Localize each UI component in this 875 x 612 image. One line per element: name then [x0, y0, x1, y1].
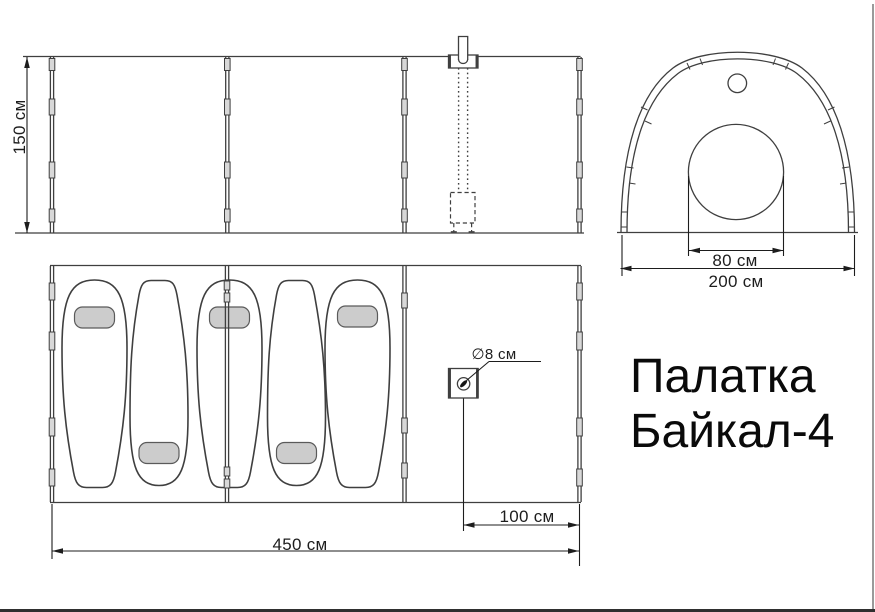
stove-base — [449, 368, 479, 398]
stove-offset-dimension-label: 100 см — [499, 507, 554, 527]
stove-pipe-hidden — [459, 68, 468, 192]
tent-drawing-page: 150 см 80 см 200 см ∅8 см 100 см 450 см … — [0, 0, 875, 612]
door-opening — [688, 124, 783, 219]
pillow-3 — [210, 307, 250, 328]
height-dimension-label: 150 см — [10, 99, 30, 154]
scan-border-right — [872, 4, 874, 612]
title-line-2: Байкал-4 — [630, 404, 834, 459]
door-width-dimension-label: 80 см — [712, 251, 757, 271]
pillow-4 — [277, 443, 317, 464]
length-dimension-label: 450 см — [272, 535, 327, 555]
side-pole-1 — [49, 57, 55, 233]
stove-hidden — [451, 193, 476, 232]
vent-hole — [728, 74, 747, 93]
side-pole-4 — [577, 57, 583, 233]
plan-pole-right — [577, 266, 583, 502]
end-view — [617, 52, 858, 276]
width-dimension-label: 200 см — [708, 272, 763, 292]
pipe-diameter-label: ∅8 см — [472, 345, 517, 363]
arch-frame-outer — [621, 52, 855, 232]
tent-drawing — [0, 0, 875, 612]
page-title: Палатка Байкал-4 — [630, 349, 834, 459]
side-pole-2 — [225, 57, 231, 233]
arch-segment-ticks — [621, 59, 855, 228]
plan-divider-2 — [402, 266, 408, 502]
title-line-1: Палатка — [630, 349, 834, 404]
chimney — [449, 37, 479, 69]
stove-offset-dimension — [464, 399, 580, 567]
pillow-1 — [75, 307, 115, 328]
plan-pole-left — [49, 266, 55, 502]
pillow-2 — [139, 443, 179, 464]
arch-frame-inner — [627, 59, 849, 233]
door-width-dimension — [689, 176, 784, 256]
pillow-5 — [338, 306, 378, 327]
side-view — [15, 37, 584, 234]
side-pole-3 — [402, 57, 408, 233]
